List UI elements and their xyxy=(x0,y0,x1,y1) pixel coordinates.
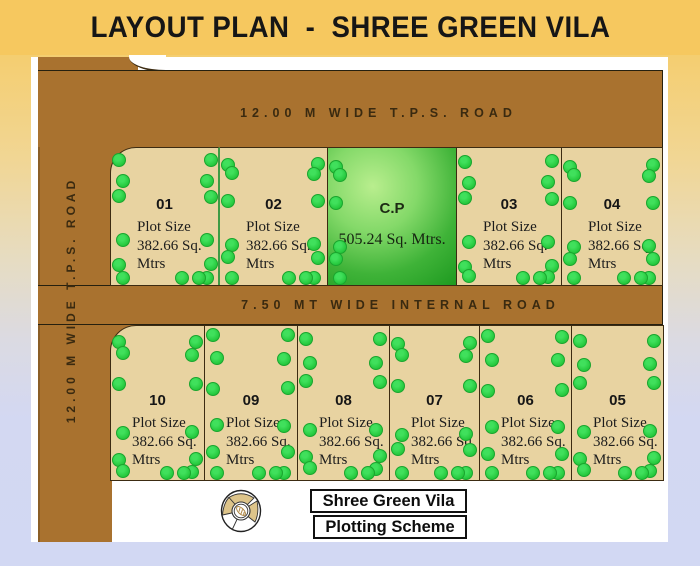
tree-icon xyxy=(112,377,126,391)
tree-icon xyxy=(329,252,343,266)
tree-icon xyxy=(225,271,239,285)
tree-icon xyxy=(577,358,591,372)
top-road-label: 12.00 M WIDE T.P.S. ROAD xyxy=(66,106,691,120)
tree-icon xyxy=(395,466,409,480)
tree-icon xyxy=(200,174,214,188)
tree-icon xyxy=(543,466,557,480)
tree-icon xyxy=(112,258,126,272)
tree-icon xyxy=(299,271,313,285)
tree-icon xyxy=(481,329,495,343)
tree-icon xyxy=(252,466,266,480)
plot-number: 10 xyxy=(111,392,204,409)
tree-icon xyxy=(303,423,317,437)
tree-icon xyxy=(206,445,220,459)
tree-icon xyxy=(116,346,130,360)
tree-icon xyxy=(481,447,495,461)
plot-04: 04Plot Size382.66 Sq.Mtrs xyxy=(562,147,663,285)
tree-icon xyxy=(577,463,591,477)
tree-icon xyxy=(545,192,559,206)
tree-icon xyxy=(577,425,591,439)
tree-icon xyxy=(463,443,477,457)
tree-icon xyxy=(303,461,317,475)
tree-icon xyxy=(463,336,477,350)
cp-area: 505.24 Sq. Mtrs. xyxy=(328,231,456,249)
tree-icon xyxy=(642,239,656,253)
tree-icon xyxy=(373,375,387,389)
plot-07: 07Plot Size382.66 Sq.Mtrs xyxy=(390,325,480,480)
tree-icon xyxy=(344,466,358,480)
tree-icon xyxy=(647,334,661,348)
tree-icon xyxy=(277,419,291,433)
tree-icon xyxy=(189,335,203,349)
tree-icon xyxy=(573,376,587,390)
tree-icon xyxy=(192,271,206,285)
tree-icon xyxy=(555,330,569,344)
tree-icon xyxy=(116,464,130,478)
tree-icon xyxy=(647,451,661,465)
tree-icon xyxy=(485,353,499,367)
plot-02: 02Plot Size382.66 Sq.Mtrs xyxy=(220,147,328,285)
plot-size-line: Plot Size xyxy=(246,218,327,237)
tree-icon xyxy=(116,271,130,285)
tree-icon xyxy=(516,271,530,285)
tree-icon xyxy=(210,418,224,432)
tree-icon xyxy=(481,384,495,398)
tree-icon xyxy=(459,427,473,441)
tree-icon xyxy=(175,271,189,285)
tree-icon xyxy=(563,196,577,210)
tree-icon xyxy=(373,332,387,346)
tree-icon xyxy=(112,189,126,203)
tree-icon xyxy=(281,381,295,395)
tree-icon xyxy=(225,166,239,180)
tree-icon xyxy=(462,176,476,190)
plot-size-text: Plot Size382.66 Sq.Mtrs xyxy=(111,218,218,274)
tree-icon xyxy=(206,382,220,396)
tree-icon xyxy=(333,271,347,285)
tree-icon xyxy=(526,466,540,480)
tree-icon xyxy=(116,174,130,188)
tree-icon xyxy=(282,271,296,285)
tree-icon xyxy=(221,250,235,264)
tree-icon xyxy=(458,191,472,205)
plot-row-bottom: 10Plot Size382.66 Sq.Mtrs09Plot Size382.… xyxy=(110,325,664,481)
plot-size-line: Plot Size xyxy=(588,218,662,237)
plot-cp: C.P505.24 Sq. Mtrs. xyxy=(328,147,457,285)
tree-icon xyxy=(206,328,220,342)
plot-size-line: Plot Size xyxy=(483,218,561,237)
tree-icon xyxy=(647,376,661,390)
tree-icon xyxy=(395,348,409,362)
tree-icon xyxy=(333,168,347,182)
plot-row-top: 01Plot Size382.66 Sq.Mtrs02Plot Size382.… xyxy=(110,147,663,286)
plot-03: 03Plot Size382.66 Sq.Mtrs xyxy=(457,147,562,285)
tree-icon xyxy=(462,269,476,283)
cp-label: C.P xyxy=(328,200,456,217)
tree-icon xyxy=(281,328,295,342)
plot-09: 09Plot Size382.66 Sq.Mtrs xyxy=(205,325,298,480)
tree-icon xyxy=(369,356,383,370)
title-banner: LAYOUT PLAN - SHREE GREEN VILA xyxy=(0,0,700,55)
tree-icon xyxy=(459,349,473,363)
tree-icon xyxy=(160,466,174,480)
tree-icon xyxy=(269,466,283,480)
tree-icon xyxy=(634,271,648,285)
tree-icon xyxy=(463,379,477,393)
page-title: LAYOUT PLAN - SHREE GREEN VILA xyxy=(90,11,610,45)
tree-icon xyxy=(485,466,499,480)
scheme-type-box: Plotting Scheme xyxy=(313,515,467,539)
tree-icon xyxy=(434,466,448,480)
tree-icon xyxy=(210,466,224,480)
tree-icon xyxy=(646,196,660,210)
plot-size-text: Plot Size382.66 Sq.Mtrs xyxy=(390,414,479,470)
plot-number: 08 xyxy=(298,392,389,409)
tree-icon xyxy=(617,271,631,285)
tree-icon xyxy=(533,271,547,285)
tree-icon xyxy=(567,271,581,285)
tree-icon xyxy=(462,235,476,249)
tree-icon xyxy=(555,383,569,397)
plot-10: 10Plot Size382.66 Sq.Mtrs xyxy=(110,325,205,480)
tree-icon xyxy=(458,155,472,169)
tree-icon xyxy=(567,168,581,182)
left-road-label: 12.00 M WIDE T.P.S. ROAD xyxy=(64,130,84,470)
tree-icon xyxy=(204,153,218,167)
tree-icon xyxy=(277,352,291,366)
tree-icon xyxy=(391,442,405,456)
tree-icon xyxy=(307,167,321,181)
tree-icon xyxy=(303,356,317,370)
tree-icon xyxy=(189,377,203,391)
tree-icon xyxy=(573,334,587,348)
tree-icon xyxy=(204,190,218,204)
internal-road-label: 7.50 MT WIDE INTERNAL ROAD xyxy=(88,298,700,312)
tree-icon xyxy=(311,194,325,208)
tree-icon xyxy=(116,233,130,247)
tree-icon xyxy=(555,447,569,461)
tree-icon xyxy=(369,423,383,437)
plot-number: 05 xyxy=(572,392,663,409)
tree-icon xyxy=(329,196,343,210)
tree-icon xyxy=(563,252,577,266)
compass-rose-icon xyxy=(219,488,263,534)
tree-icon xyxy=(299,332,313,346)
tree-icon xyxy=(395,428,409,442)
tree-icon xyxy=(116,426,130,440)
tree-icon xyxy=(311,251,325,265)
plot-number: 07 xyxy=(390,392,479,409)
tree-icon xyxy=(551,353,565,367)
tree-icon xyxy=(221,194,235,208)
tree-icon xyxy=(112,153,126,167)
tree-icon xyxy=(185,348,199,362)
tree-icon xyxy=(485,420,499,434)
tree-icon xyxy=(189,452,203,466)
layout-plan-page: LAYOUT PLAN - SHREE GREEN VILA 12.00 M W… xyxy=(0,0,700,566)
tree-icon xyxy=(541,175,555,189)
tree-icon xyxy=(545,154,559,168)
tree-icon xyxy=(642,169,656,183)
plot-06: 06Plot Size382.66 Sq.Mtrs xyxy=(480,325,572,480)
scheme-name-box: Shree Green Vila xyxy=(310,489,467,513)
plot-number: 09 xyxy=(205,392,297,409)
tree-icon xyxy=(299,374,313,388)
tree-icon xyxy=(618,466,632,480)
tree-icon xyxy=(361,466,375,480)
tree-icon xyxy=(643,357,657,371)
plot-01: 01Plot Size382.66 Sq.Mtrs xyxy=(110,147,220,285)
tree-icon xyxy=(451,466,465,480)
tree-icon xyxy=(391,379,405,393)
plot-05: 05Plot Size382.66 Sq.Mtrs xyxy=(572,325,664,480)
tree-icon xyxy=(210,351,224,365)
tree-icon xyxy=(635,466,649,480)
plot-number: 01 xyxy=(111,196,218,213)
plot-08: 08Plot Size382.66 Sq.Mtrs xyxy=(298,325,390,480)
tree-icon xyxy=(177,466,191,480)
tree-icon xyxy=(541,235,555,249)
